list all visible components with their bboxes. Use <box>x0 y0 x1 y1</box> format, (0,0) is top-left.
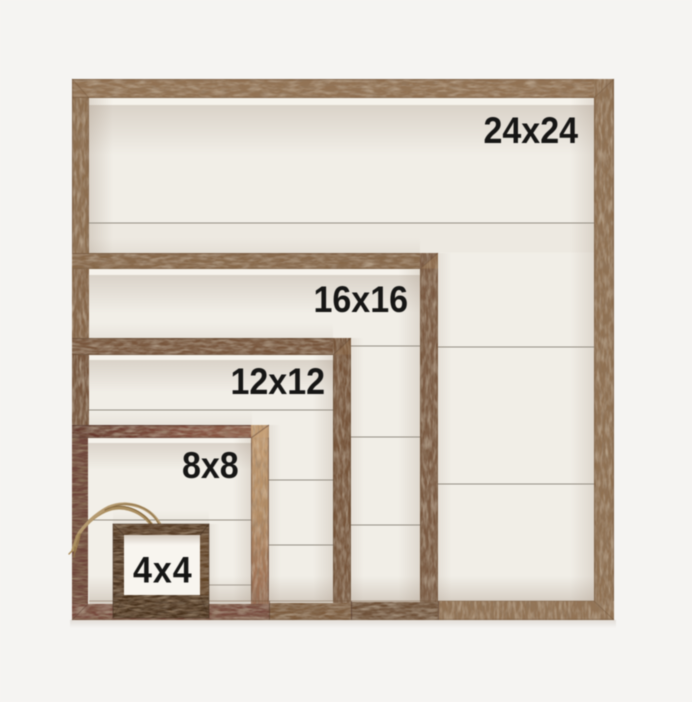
svg-text:8x8: 8x8 <box>182 446 239 486</box>
svg-text:24x24: 24x24 <box>484 111 579 151</box>
svg-text:4x4: 4x4 <box>133 550 193 590</box>
svg-text:12x12: 12x12 <box>231 362 326 402</box>
svg-text:16x16: 16x16 <box>314 280 409 320</box>
